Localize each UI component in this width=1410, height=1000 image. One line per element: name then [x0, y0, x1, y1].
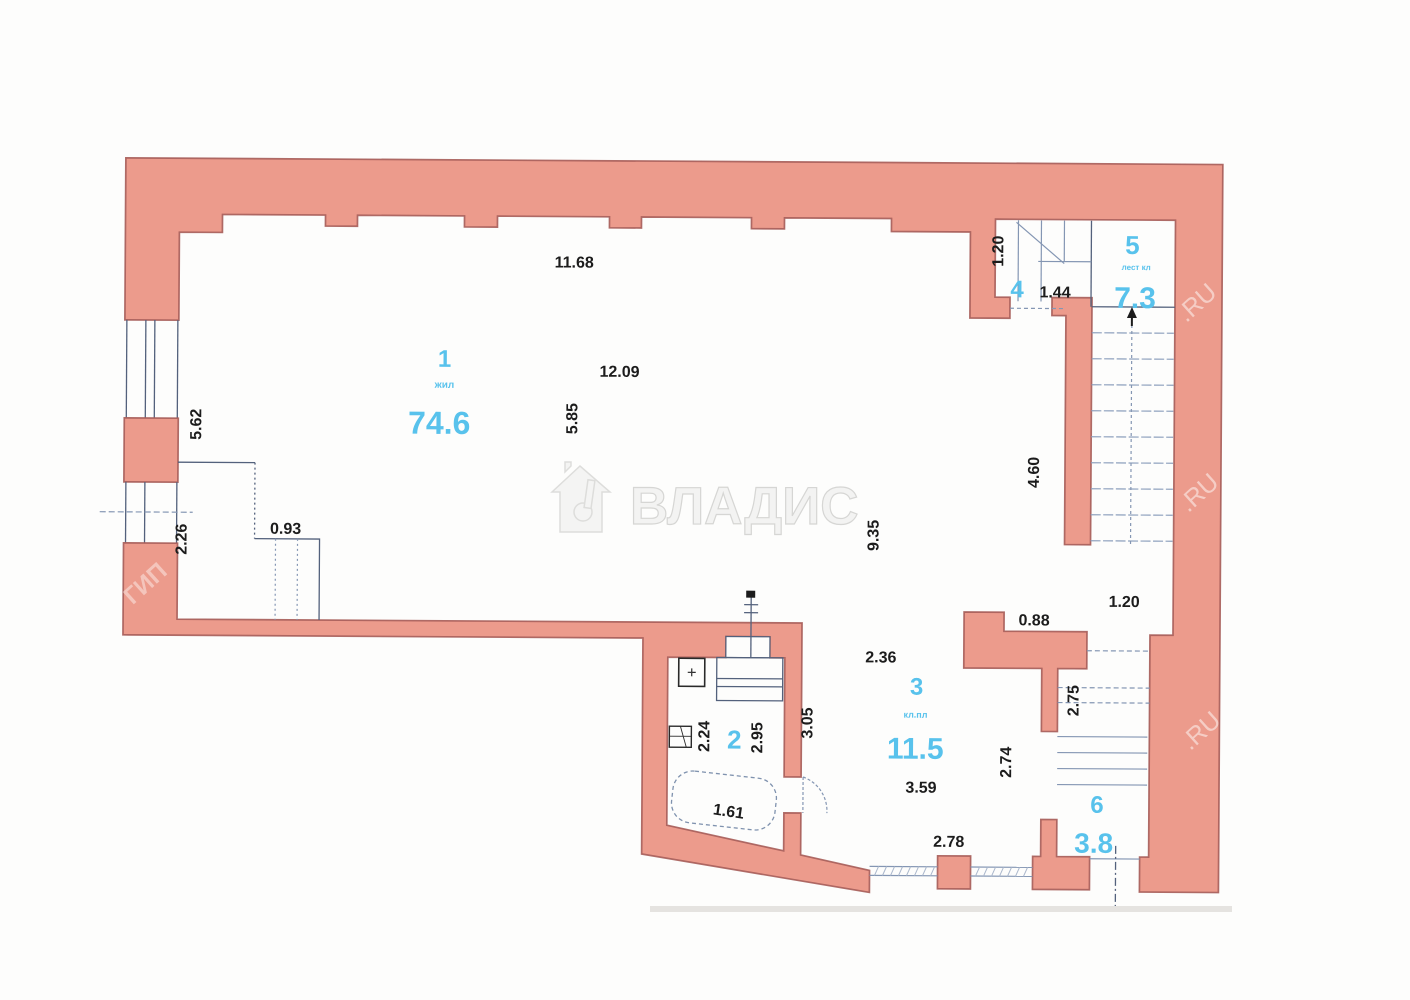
svg-text:12.09: 12.09 [599, 364, 639, 381]
svg-text:2.75: 2.75 [1065, 685, 1082, 716]
svg-text:1.20: 1.20 [1109, 594, 1140, 611]
svg-text:2.74: 2.74 [998, 747, 1015, 778]
svg-text:2.78: 2.78 [933, 834, 964, 851]
svg-text:кл.пл: кл.пл [903, 710, 927, 720]
svg-text:2: 2 [727, 725, 742, 755]
svg-text:11.68: 11.68 [555, 254, 594, 271]
svg-text:3: 3 [910, 674, 924, 701]
svg-text:4.60: 4.60 [1026, 457, 1043, 488]
svg-text:2.26: 2.26 [173, 523, 190, 554]
svg-text:2.24: 2.24 [696, 721, 713, 752]
svg-text:ВЛАДИС: ВЛАДИС [630, 477, 859, 536]
svg-text:5.85: 5.85 [564, 403, 581, 434]
svg-text:3.59: 3.59 [905, 780, 936, 797]
svg-text:9.35: 9.35 [865, 520, 882, 551]
svg-text:3.05: 3.05 [799, 707, 816, 738]
svg-text:0.88: 0.88 [1018, 612, 1049, 629]
svg-text:1: 1 [438, 346, 452, 373]
svg-text:1.20: 1.20 [990, 235, 1007, 266]
svg-text:1.44: 1.44 [1039, 284, 1070, 301]
svg-text:2.95: 2.95 [749, 722, 766, 753]
svg-text:6: 6 [1090, 792, 1104, 819]
svg-text:лест кл: лест кл [1122, 263, 1151, 272]
svg-text:жил: жил [434, 380, 455, 391]
svg-text:74.6: 74.6 [408, 405, 470, 441]
svg-text:7.3: 7.3 [1114, 282, 1156, 315]
svg-text:2.36: 2.36 [865, 649, 896, 666]
svg-text:3.8: 3.8 [1074, 828, 1113, 859]
svg-text:5: 5 [1125, 230, 1140, 260]
svg-text:4: 4 [1010, 276, 1024, 303]
svg-text:11.5: 11.5 [887, 733, 944, 766]
svg-text:5.62: 5.62 [188, 409, 205, 440]
svg-text:0.93: 0.93 [270, 521, 301, 538]
svg-text:1.61: 1.61 [712, 801, 745, 822]
